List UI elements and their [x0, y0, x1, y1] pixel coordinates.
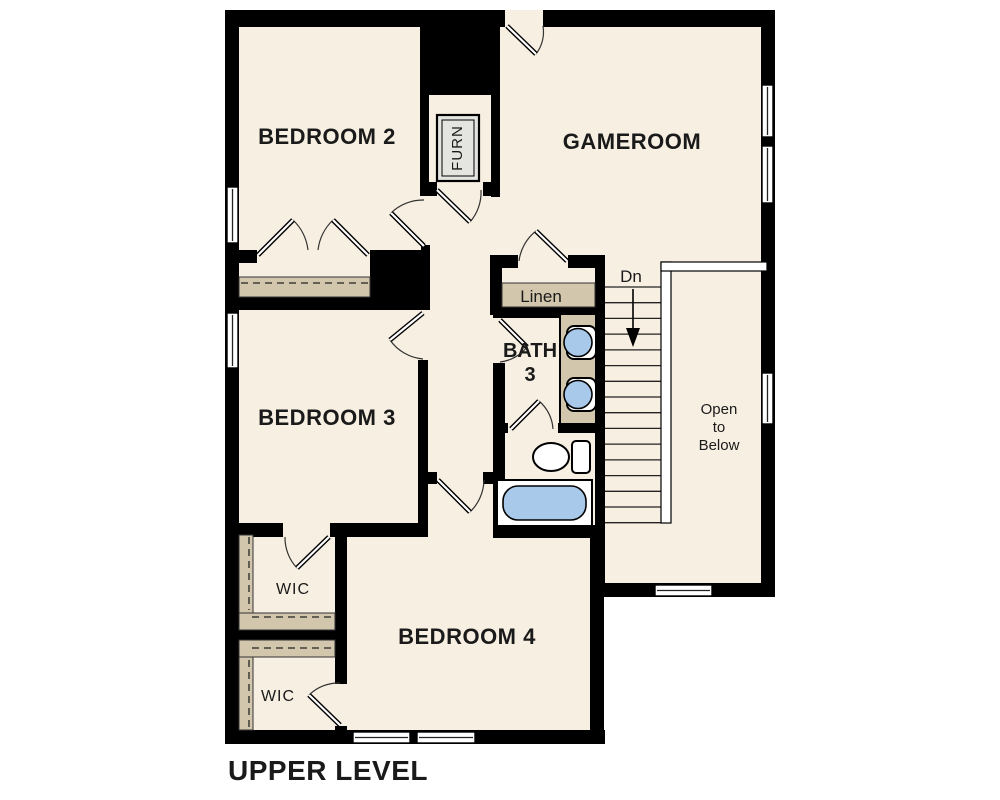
open-to-below-line3: Below [699, 437, 740, 454]
sink-icon [564, 378, 596, 411]
toilet-icon [533, 441, 590, 473]
window [227, 187, 238, 243]
bath3-label-line2: 3 [524, 364, 535, 386]
window [655, 585, 712, 596]
wic-upper-label: WIC [276, 581, 310, 598]
bedroom4-label: BEDROOM 4 [398, 624, 536, 649]
sink-icon [564, 326, 596, 359]
linen-label: Linen [520, 287, 562, 306]
window [417, 732, 475, 743]
floor-plan-page: FURN BEDROOM 2 GAMEROOM BEDROOM 3 BEDROO… [0, 0, 1000, 800]
bath3-label-line1: BATH [503, 340, 557, 362]
furnace-icon: FURN [437, 115, 479, 181]
open-to-below-line1: Open [701, 401, 738, 418]
bedroom3-label: BEDROOM 3 [258, 405, 396, 430]
floor-plan: FURN BEDROOM 2 GAMEROOM BEDROOM 3 BEDROO… [0, 0, 1000, 800]
stairs-dn-label: Dn [620, 267, 642, 286]
bedroom2-label: BEDROOM 2 [258, 124, 396, 149]
window [353, 732, 410, 743]
open-to-below-railing [661, 262, 767, 271]
furnace-label: FURN [449, 125, 466, 171]
window [762, 373, 773, 424]
wic-lower-label: WIC [261, 688, 295, 705]
bathtub-icon [497, 480, 592, 526]
open-to-below-line2: to [713, 419, 726, 436]
gameroom-label: GAMEROOM [563, 129, 701, 154]
window [762, 146, 773, 203]
window [227, 313, 238, 368]
window [762, 85, 773, 137]
page-title: UPPER LEVEL [228, 755, 428, 786]
stair-railing [661, 262, 671, 523]
